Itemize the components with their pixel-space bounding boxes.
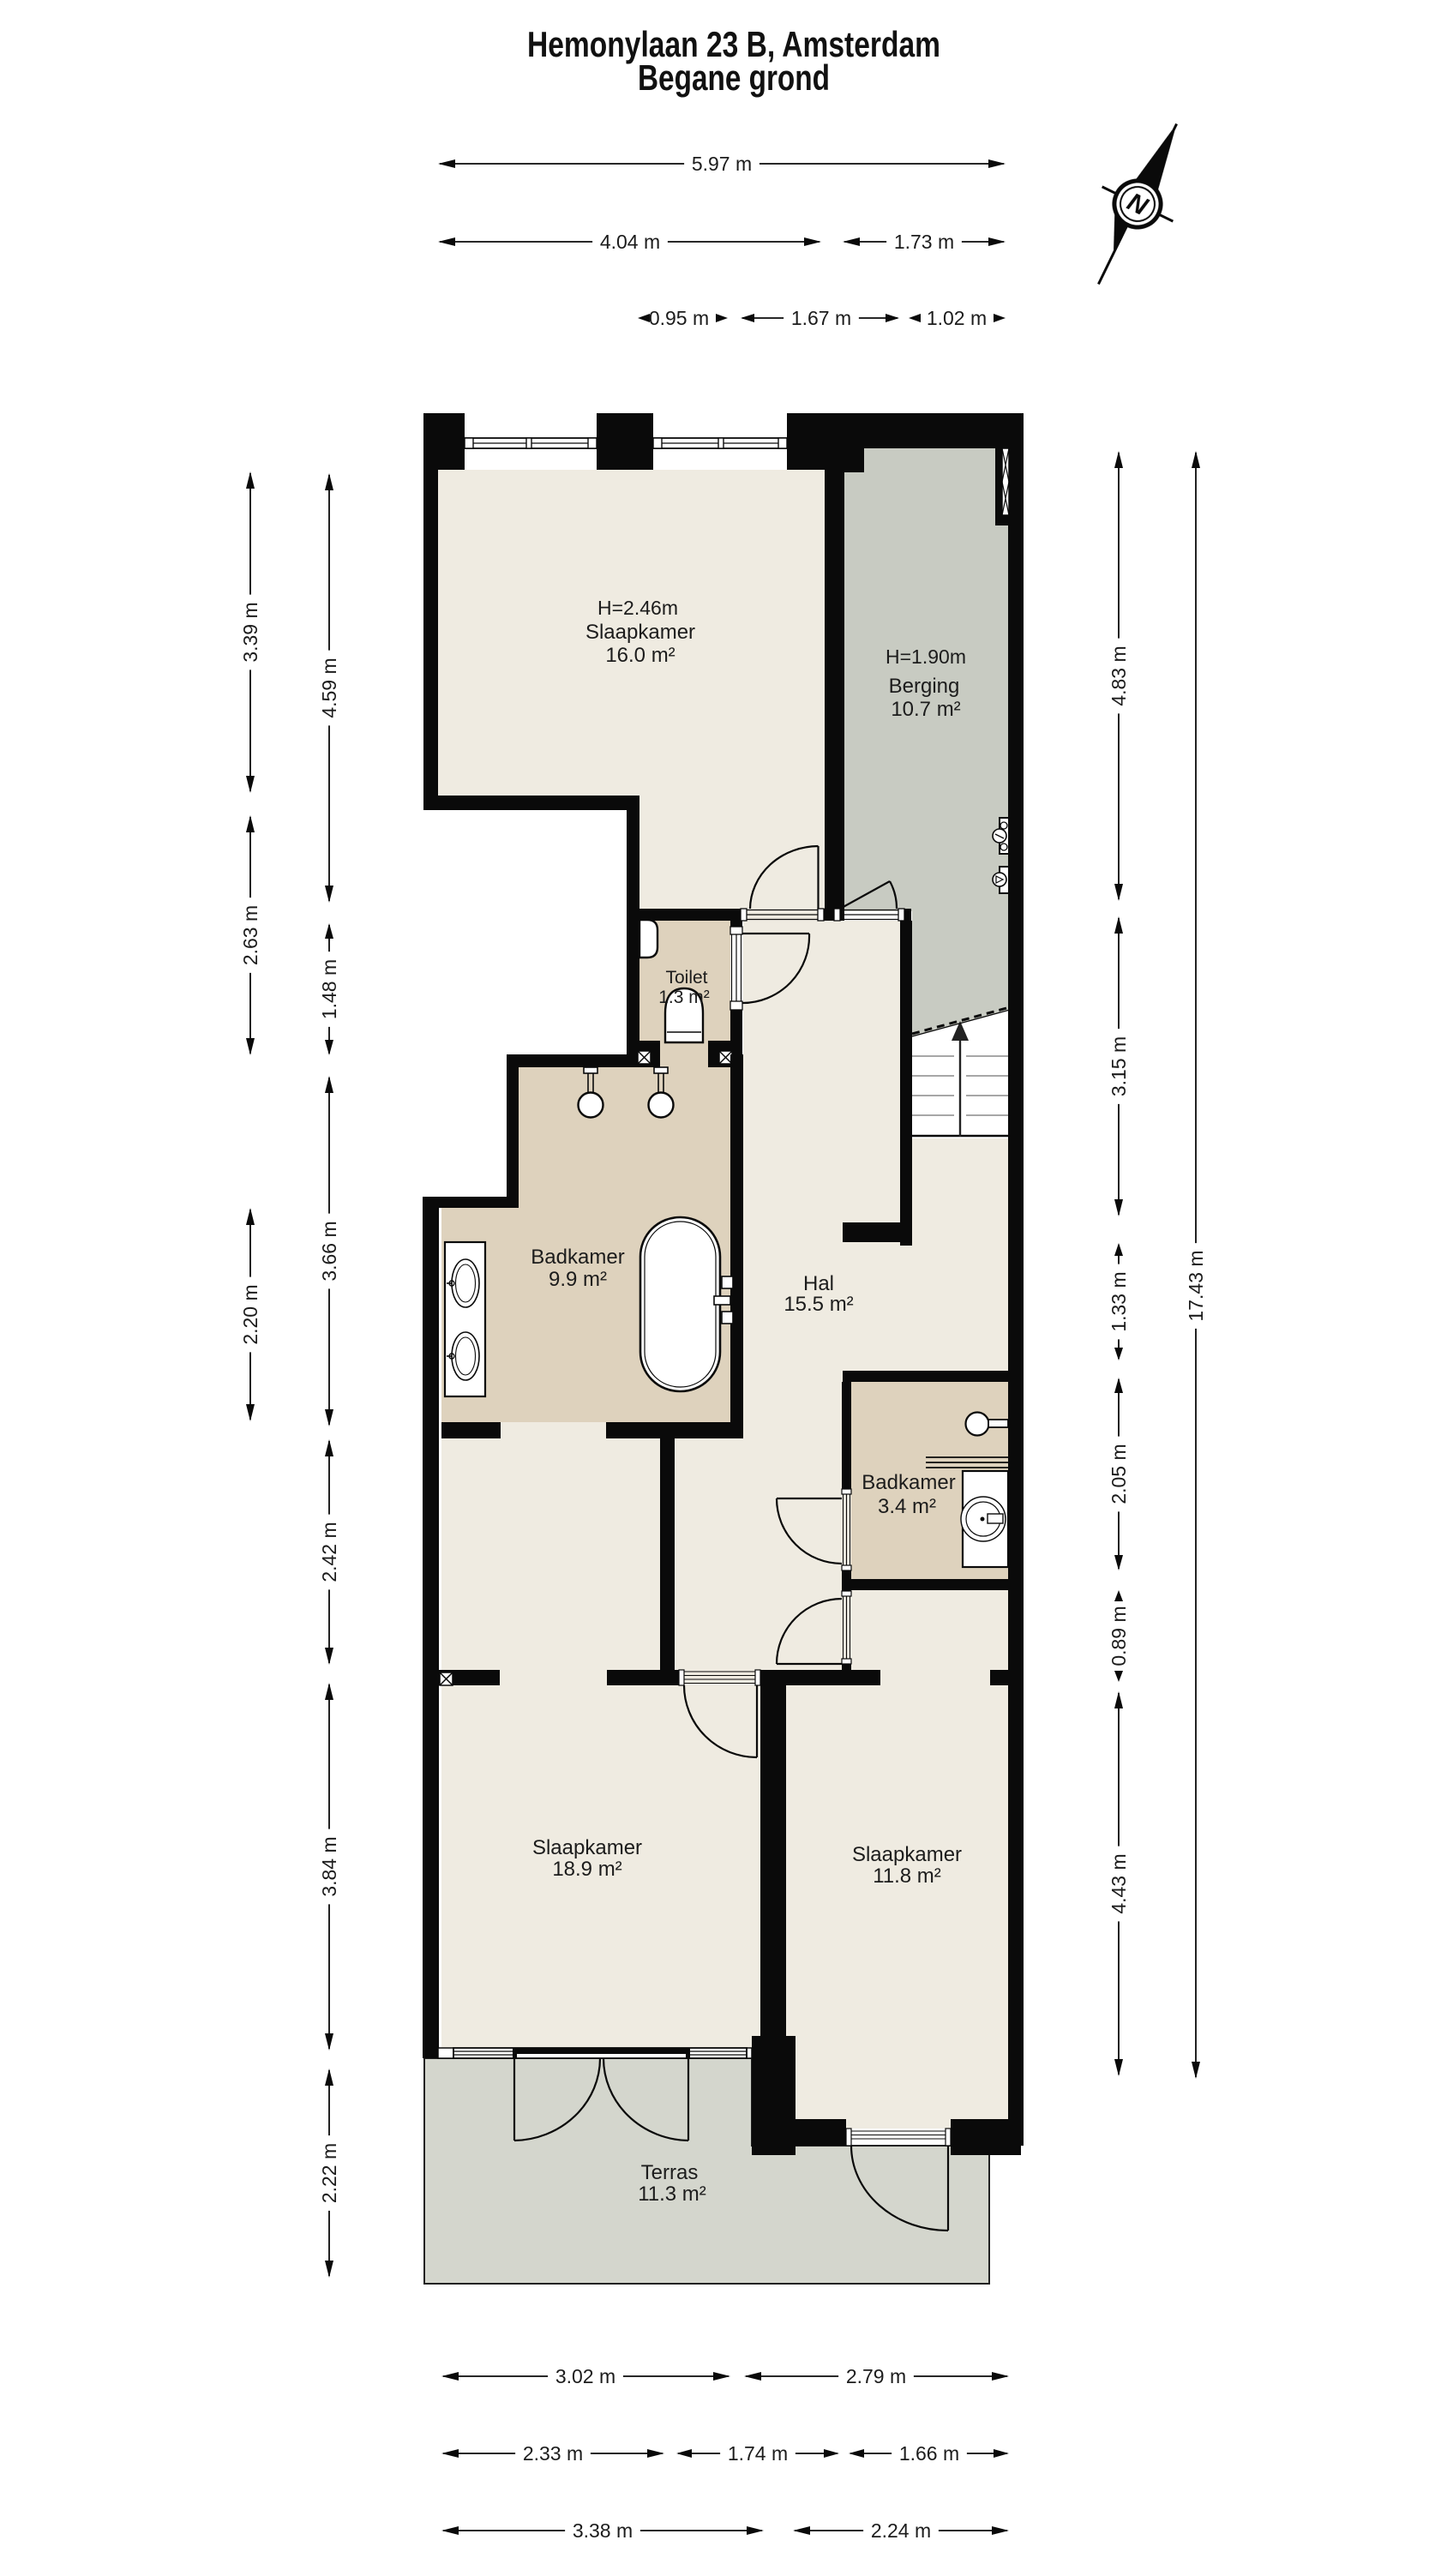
svg-text:3.4 m²: 3.4 m² — [878, 1495, 936, 1518]
svg-text:4.83 m: 4.83 m — [1108, 646, 1130, 706]
svg-text:1.67 m: 1.67 m — [791, 307, 851, 329]
svg-text:2.22 m: 2.22 m — [318, 2143, 340, 2203]
svg-text:18.9 m²: 18.9 m² — [552, 1858, 621, 1881]
svg-text:3.84 m: 3.84 m — [318, 1836, 340, 1896]
svg-text:0.89 m: 0.89 m — [1108, 1606, 1130, 1666]
svg-text:2.20 m: 2.20 m — [239, 1284, 261, 1344]
svg-text:5.97 m: 5.97 m — [692, 153, 752, 175]
svg-text:H=1.90m: H=1.90m — [886, 646, 966, 668]
svg-text:9.9 m²: 9.9 m² — [549, 1268, 607, 1291]
svg-text:4.04 m: 4.04 m — [600, 231, 660, 253]
svg-text:2.33 m: 2.33 m — [523, 2442, 583, 2465]
svg-text:2.63 m: 2.63 m — [239, 905, 261, 965]
svg-text:1.3 m²: 1.3 m² — [658, 988, 710, 1007]
svg-text:2.79 m: 2.79 m — [846, 2365, 906, 2387]
svg-text:Toilet: Toilet — [665, 968, 707, 988]
svg-text:Slaapkamer: Slaapkamer — [852, 1843, 962, 1866]
svg-text:3.66 m: 3.66 m — [318, 1221, 340, 1281]
svg-text:1.74 m: 1.74 m — [728, 2442, 788, 2465]
svg-text:Slaapkamer: Slaapkamer — [532, 1836, 642, 1859]
svg-text:2.24 m: 2.24 m — [871, 2519, 931, 2542]
svg-text:4.43 m: 4.43 m — [1108, 1853, 1130, 1913]
svg-text:Berging: Berging — [889, 675, 960, 698]
svg-text:11.8 m²: 11.8 m² — [873, 1864, 941, 1888]
svg-text:3.38 m: 3.38 m — [573, 2519, 633, 2542]
svg-text:Terras: Terras — [641, 2161, 699, 2184]
svg-text:4.59 m: 4.59 m — [318, 658, 340, 718]
svg-text:Badkamer: Badkamer — [531, 1246, 624, 1269]
svg-text:Slaapkamer: Slaapkamer — [585, 621, 695, 644]
svg-text:Badkamer: Badkamer — [862, 1471, 955, 1494]
svg-text:H=2.46m: H=2.46m — [597, 597, 678, 619]
svg-text:15.5 m²: 15.5 m² — [784, 1293, 853, 1316]
svg-text:Hal: Hal — [803, 1272, 834, 1295]
svg-text:0.95 m: 0.95 m — [649, 307, 709, 329]
svg-text:3.39 m: 3.39 m — [239, 602, 261, 662]
svg-text:16.0 m²: 16.0 m² — [605, 644, 675, 667]
svg-text:11.3 m²: 11.3 m² — [638, 2183, 706, 2206]
svg-text:2.05 m: 2.05 m — [1108, 1444, 1130, 1504]
svg-text:2.42 m: 2.42 m — [318, 1522, 340, 1582]
svg-text:Begane grond: Begane grond — [638, 57, 830, 98]
svg-text:1.66 m: 1.66 m — [899, 2442, 959, 2465]
svg-text:17.43 m: 17.43 m — [1185, 1250, 1207, 1321]
svg-text:3.15 m: 3.15 m — [1108, 1036, 1130, 1096]
svg-text:1.48 m: 1.48 m — [318, 959, 340, 1019]
svg-text:1.73 m: 1.73 m — [894, 231, 954, 253]
svg-text:1.33 m: 1.33 m — [1108, 1271, 1130, 1331]
svg-text:10.7 m²: 10.7 m² — [891, 698, 960, 721]
svg-text:1.02 m: 1.02 m — [927, 307, 987, 329]
svg-text:3.02 m: 3.02 m — [555, 2365, 615, 2387]
